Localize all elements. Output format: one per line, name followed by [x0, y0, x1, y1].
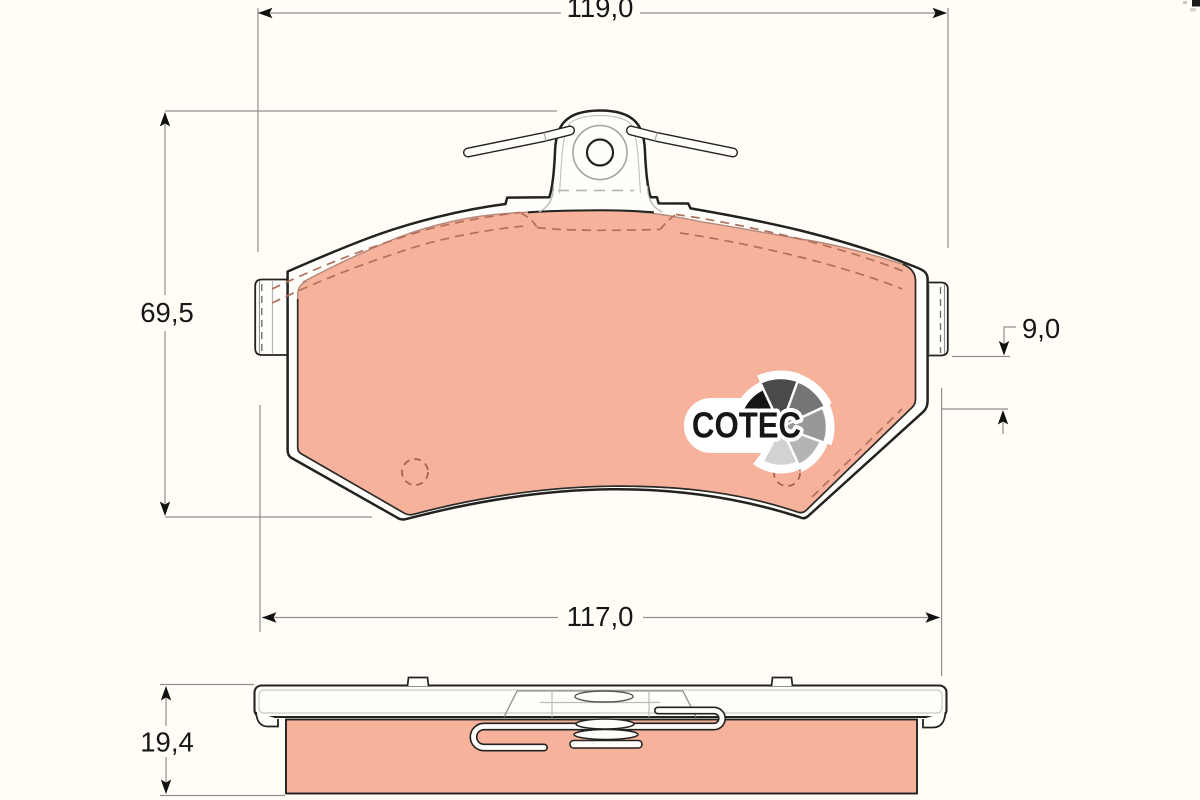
svg-text:117,0: 117,0: [567, 601, 634, 632]
svg-text:119,0: 119,0: [567, 0, 634, 23]
svg-text:19,4: 19,4: [140, 727, 194, 758]
svg-text:9,0: 9,0: [1022, 313, 1060, 344]
svg-text:COTEC: COTEC: [692, 405, 801, 446]
svg-text:69,5: 69,5: [140, 297, 194, 328]
